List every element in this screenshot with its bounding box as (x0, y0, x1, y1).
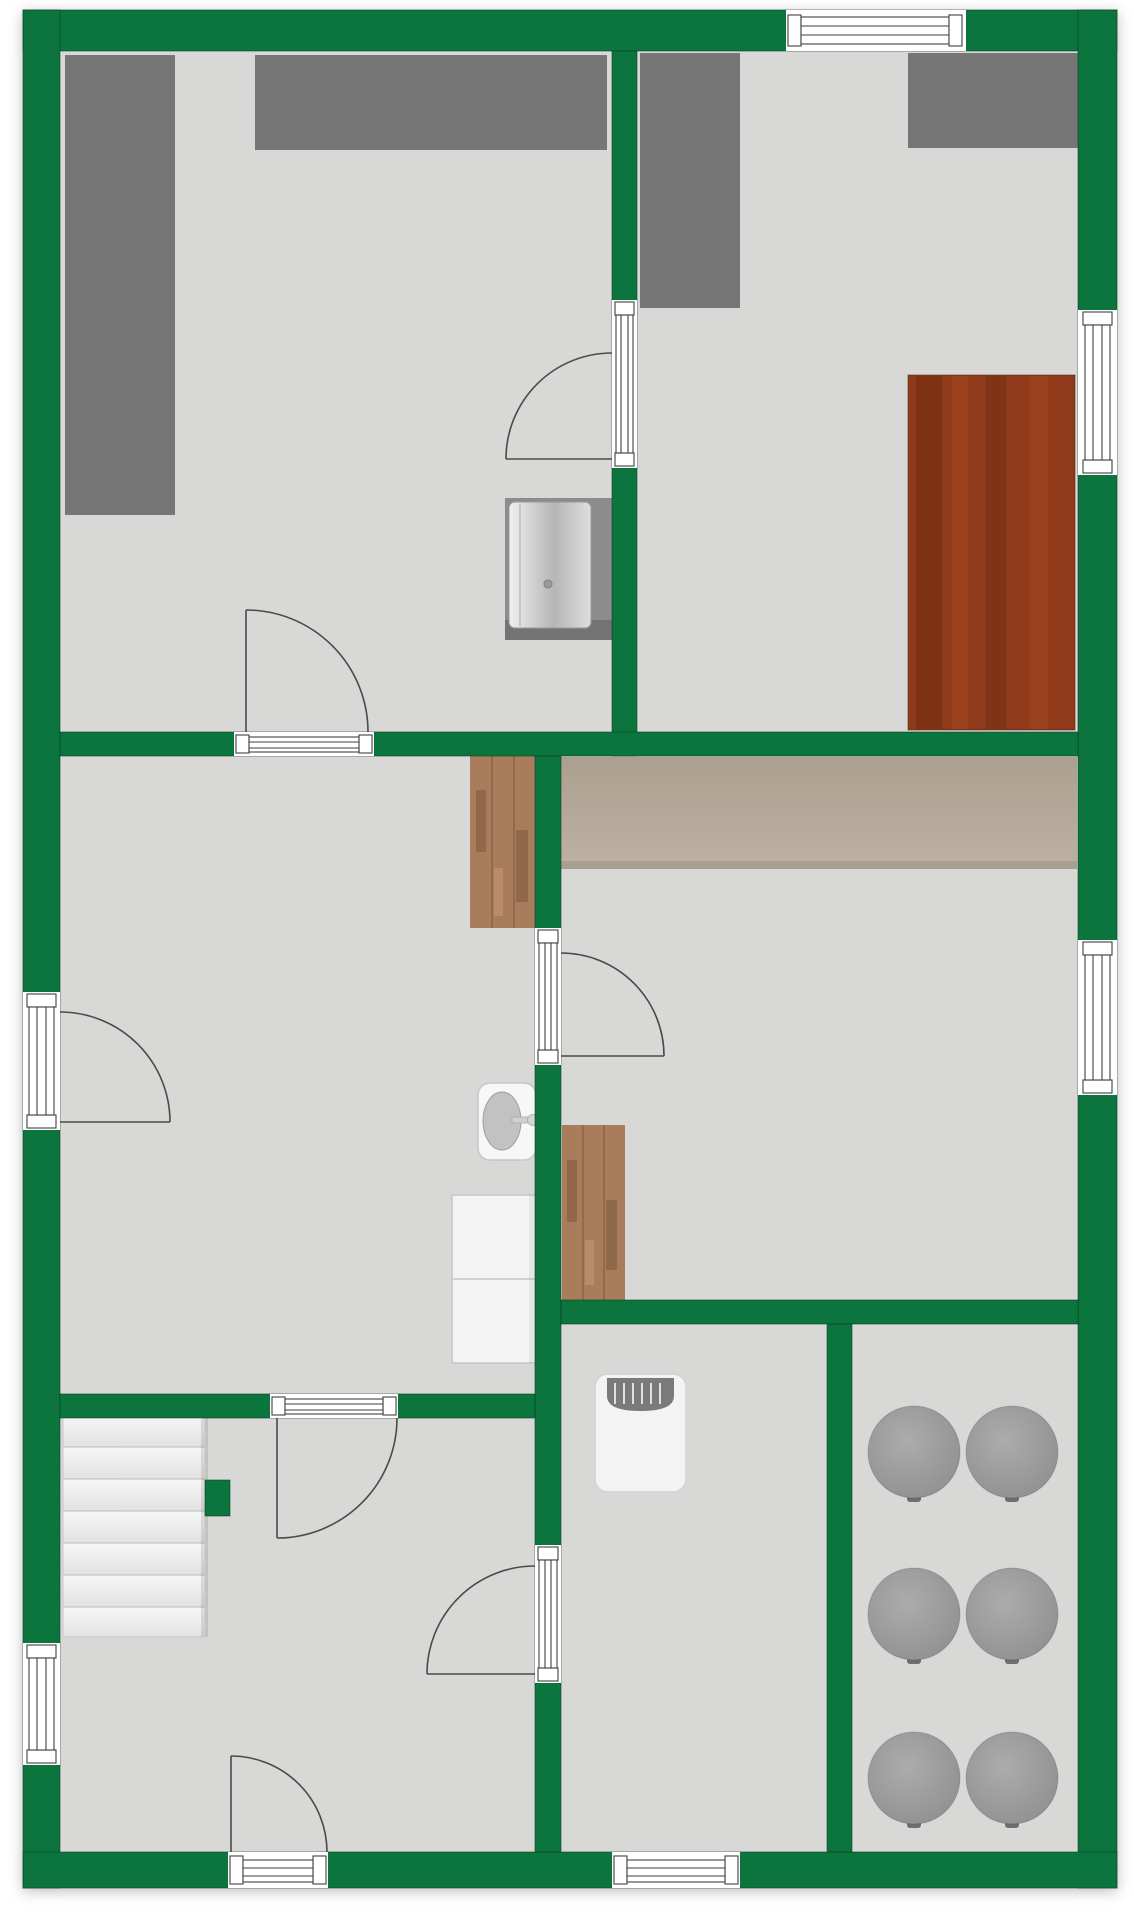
door-entry-bottom-box-left (230, 1856, 243, 1884)
wall-mid-horizontal (60, 732, 1078, 756)
floor-plan-page (0, 0, 1134, 1920)
window-left-frame (29, 1658, 54, 1750)
table-grain-4 (1030, 376, 1048, 729)
table-grain-1 (916, 376, 942, 729)
wood-strip-1-streak-1 (476, 790, 486, 852)
door-mid-box-top (538, 930, 558, 943)
door-entry-left-frame (29, 1007, 54, 1115)
door-hall-frame (285, 1399, 383, 1414)
table-grain-2 (952, 376, 968, 729)
stool-4 (966, 1568, 1058, 1660)
door-mid-box-bottom (538, 1050, 558, 1063)
wall-stair-stub (205, 1480, 230, 1516)
door-entry-bottom-box-right (313, 1856, 326, 1884)
window-left-box-top (27, 1645, 56, 1658)
wood-strip-2-streak-3 (585, 1240, 594, 1285)
window-right-upper-box-top (1083, 312, 1112, 325)
window-bottom-frame (627, 1860, 725, 1882)
window-right-upper-frame (1085, 325, 1110, 460)
window-right-middle-box-bottom (1083, 1080, 1112, 1093)
wardrobe (640, 53, 740, 308)
water-heater-grille (607, 1378, 674, 1411)
door-entry-bottom-frame (243, 1860, 313, 1882)
wall-left (23, 10, 60, 1888)
window-right-middle-frame (1085, 955, 1110, 1080)
door-bottommid-box-top (538, 1547, 558, 1560)
wall-divider-bottom (535, 756, 561, 1852)
door-toprooms-box-top (615, 302, 634, 315)
kitchen-counter-left (65, 55, 175, 515)
window-bottom-box-right (725, 1856, 738, 1884)
window-bottom-box-left (614, 1856, 627, 1884)
stair-tread-5 (63, 1543, 205, 1575)
stool-1 (868, 1406, 960, 1498)
window-top-box-right (949, 15, 962, 46)
wall-bottomrooms-top (561, 1300, 1078, 1324)
stair-tread-2 (63, 1447, 205, 1479)
stair-tread-3 (63, 1479, 205, 1511)
counter-beige (561, 757, 1077, 869)
wall-bottom (23, 1852, 1117, 1888)
door-kitchen-box-left (236, 735, 249, 753)
wood-strip-2-streak-1 (567, 1160, 577, 1222)
wood-strip-2-streak-2 (606, 1200, 617, 1270)
fridge-handle (544, 580, 552, 588)
door-toprooms-box-bottom (615, 453, 634, 466)
window-top-box-left (788, 15, 801, 46)
door-hall-box-left (272, 1397, 285, 1415)
door-toprooms-frame (616, 315, 633, 453)
stair-tread-1 (63, 1415, 205, 1447)
counter-beige-shadow (561, 861, 1077, 869)
door-bottommid-box-bottom (538, 1668, 558, 1681)
door-kitchen-box-right (359, 735, 372, 753)
wood-strip-1-streak-3 (494, 868, 503, 916)
stool-3 (868, 1568, 960, 1660)
fridge-body (509, 502, 591, 628)
window-top-frame (801, 17, 949, 44)
wall-stools-partition (827, 1324, 852, 1852)
door-entry-left-box-top (27, 994, 56, 1007)
floor-plan-svg (0, 0, 1134, 1920)
door-entry-left-box-bottom (27, 1115, 56, 1128)
stair-tread-6 (63, 1575, 205, 1607)
kitchen-counter-top (255, 55, 607, 150)
door-hall-box-right (383, 1397, 396, 1415)
wood-strip-1-streak-2 (516, 830, 528, 902)
window-left-box-bottom (27, 1750, 56, 1763)
stair-tread-7 (63, 1607, 205, 1637)
sideboard-topright (908, 53, 1078, 148)
window-right-middle-box-top (1083, 942, 1112, 955)
door-kitchen-frame (249, 737, 359, 752)
door-mid-frame (539, 943, 557, 1050)
window-right-upper-box-bottom (1083, 460, 1112, 473)
sink-faucet (512, 1117, 528, 1123)
stool-5 (868, 1732, 960, 1824)
stool-6 (966, 1732, 1058, 1824)
table-grain-3 (986, 376, 1006, 729)
door-bottommid-frame (539, 1560, 557, 1668)
stool-2 (966, 1406, 1058, 1498)
stair-tread-4 (63, 1511, 205, 1543)
